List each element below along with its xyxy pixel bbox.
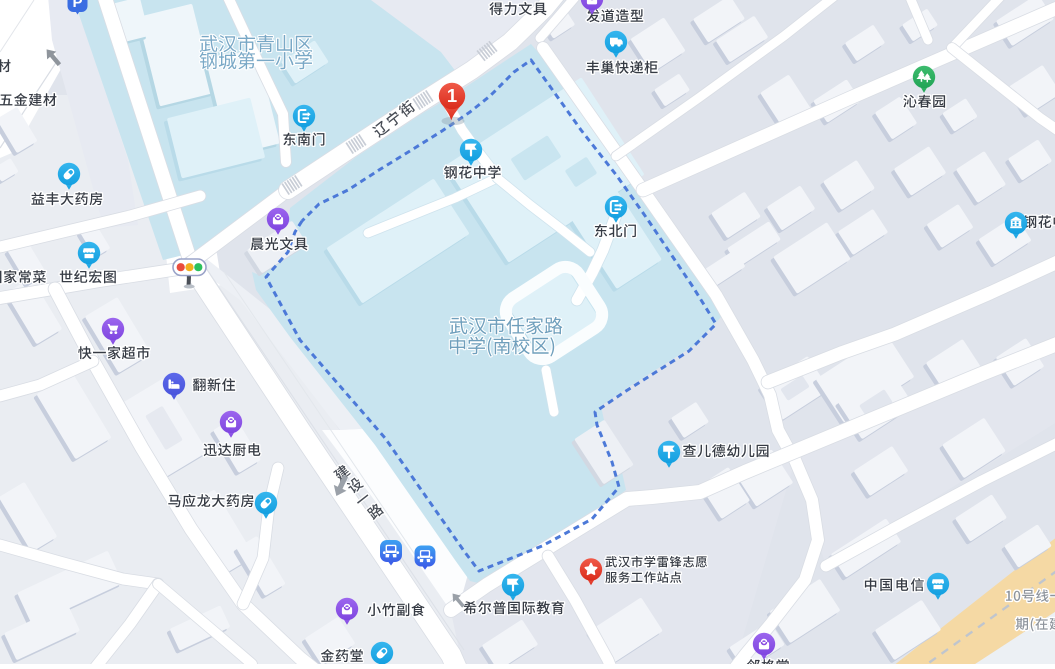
svg-text:1: 1 xyxy=(447,85,457,106)
svg-text:P: P xyxy=(72,0,82,11)
